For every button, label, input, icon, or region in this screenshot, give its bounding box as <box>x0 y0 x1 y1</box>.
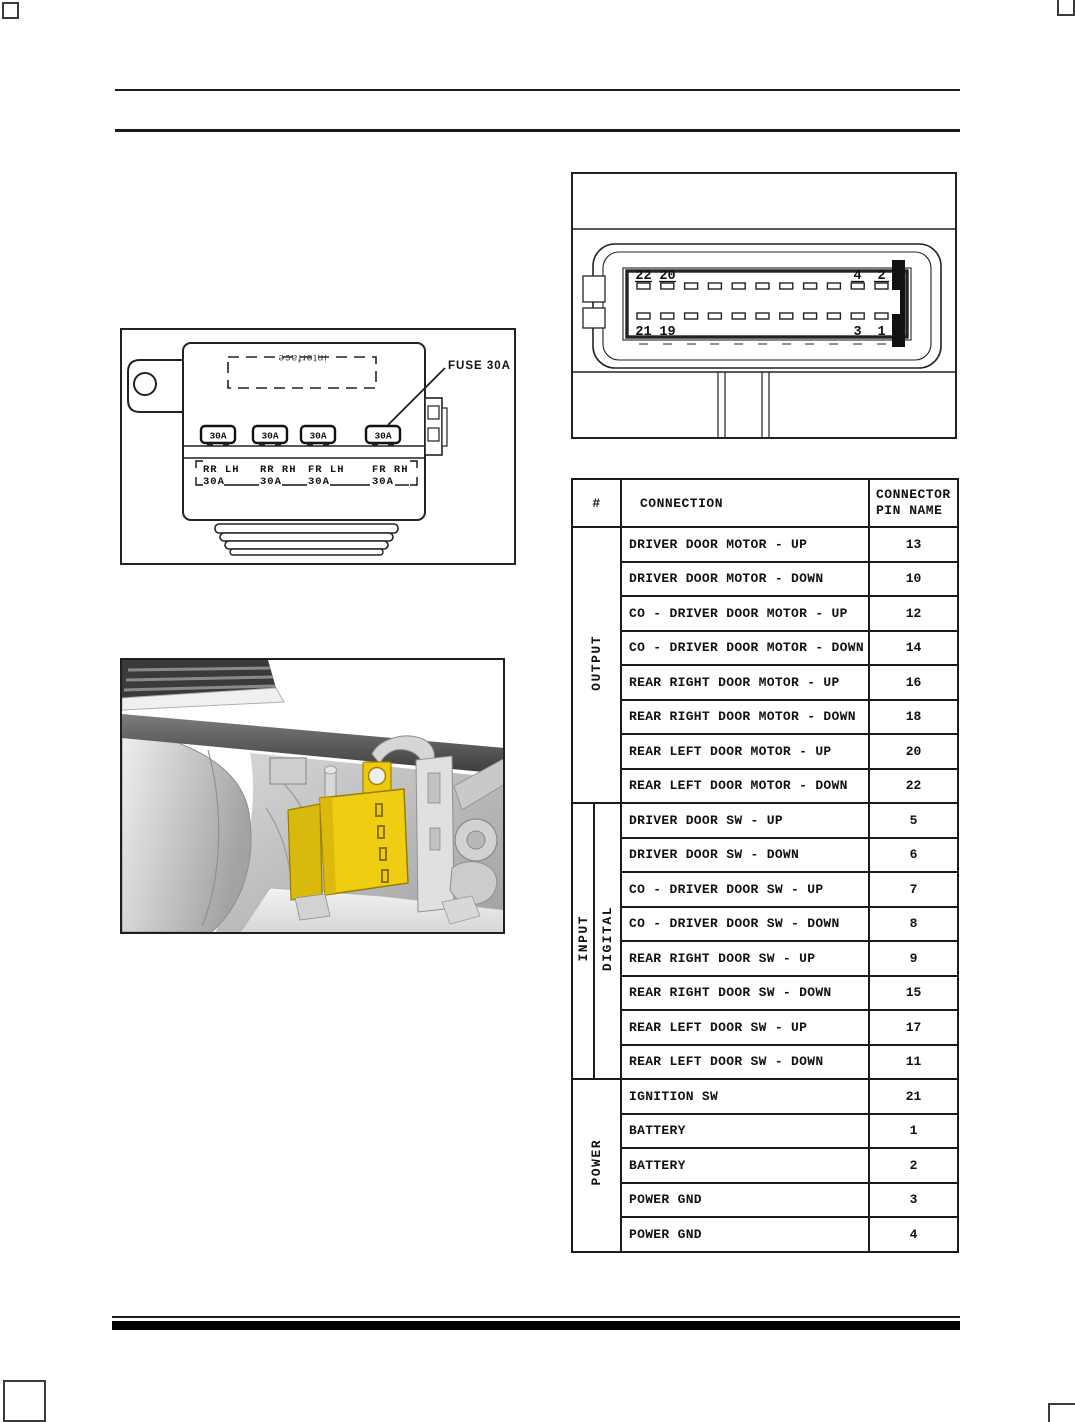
header-connection: CONNECTION <box>621 479 869 527</box>
group-label-input: INPUT <box>577 915 590 962</box>
header-rule-bottom <box>115 129 960 132</box>
registration-mark-bottom-left <box>3 1380 46 1422</box>
header-connector-pin-name: CONNECTOR PIN NAME <box>869 479 958 527</box>
footer-rule-thick <box>112 1321 960 1330</box>
connection-cell: BATTERY <box>621 1148 869 1183</box>
connection-cell: CO - DRIVER DOOR SW - UP <box>621 872 869 907</box>
connector-pinout-figure: 22 20 4 2 21 19 3 1 <box>571 172 957 439</box>
group-label-power: POWER <box>590 1139 603 1186</box>
connection-cell: POWER GND <box>621 1183 869 1218</box>
table-row: OUTPUT DRIVER DOOR MOTOR - UP 13 <box>572 527 958 562</box>
connector-pin-table: # CONNECTION CONNECTOR PIN NAME OUTPUT D… <box>571 478 957 1253</box>
fuse-4: 30A <box>366 426 400 446</box>
table-row: REAR RIGHT DOOR MOTOR - DOWN 18 <box>572 700 958 735</box>
table-row: REAR LEFT DOOR SW - UP 17 <box>572 1010 958 1045</box>
circuit-3-amp: 30A <box>308 476 330 488</box>
fuse-module-figure: interface 30A 30A 30A 30A <box>120 328 516 565</box>
circuit-4-name: FR RH <box>372 464 409 476</box>
pin-number-21: 21 <box>635 325 651 340</box>
pin-number-19: 19 <box>659 325 675 340</box>
table-row: CO - DRIVER DOOR MOTOR - DOWN 14 <box>572 631 958 666</box>
group-label-digital: DIGITAL <box>601 906 614 971</box>
air-vent <box>122 660 284 710</box>
bottom-connector-stack <box>215 524 398 555</box>
table-row: INPUT DIGITAL DRIVER DOOR SW - UP 5 <box>572 803 958 838</box>
header-rule-top <box>115 89 960 91</box>
table-row: CO - DRIVER DOOR SW - DOWN 8 <box>572 907 958 942</box>
table-row: DRIVER DOOR MOTOR - DOWN 10 <box>572 562 958 597</box>
table-row: DRIVER DOOR SW - DOWN 6 <box>572 838 958 873</box>
connection-cell: DRIVER DOOR MOTOR - UP <box>621 527 869 562</box>
pin-cell: 1 <box>869 1114 958 1149</box>
fuse-3: 30A <box>301 426 335 446</box>
group-label-output: OUTPUT <box>590 635 603 691</box>
table-row: REAR LEFT DOOR SW - DOWN 11 <box>572 1045 958 1080</box>
table-row: REAR LEFT DOOR MOTOR - DOWN 22 <box>572 769 958 804</box>
header-number: # <box>572 479 621 527</box>
table-row: REAR LEFT DOOR MOTOR - UP 20 <box>572 734 958 769</box>
registration-mark-bottom-right <box>1048 1403 1075 1422</box>
group-cell-power: POWER <box>572 1079 621 1252</box>
circuit-4-amp: 30A <box>372 476 394 488</box>
lower-bracket <box>295 894 330 920</box>
connection-cell: REAR RIGHT DOOR MOTOR - UP <box>621 665 869 700</box>
connection-cell: REAR RIGHT DOOR MOTOR - DOWN <box>621 700 869 735</box>
vertical-bracket <box>416 756 454 912</box>
fuse-1: 30A <box>201 426 235 446</box>
pin-cell: 12 <box>869 596 958 631</box>
pin-cell: 22 <box>869 769 958 804</box>
circuit-2-name: RR RH <box>260 464 297 476</box>
table-header-row: # CONNECTION CONNECTOR PIN NAME <box>572 479 958 527</box>
connection-cell: IGNITION SW <box>621 1079 869 1114</box>
circuit-3-name: FR LH <box>308 464 345 476</box>
connection-cell: REAR LEFT DOOR MOTOR - DOWN <box>621 769 869 804</box>
pin-cell: 13 <box>869 527 958 562</box>
pin-cell: 14 <box>869 631 958 666</box>
fuse-2: 30A <box>253 426 287 446</box>
connector-key-bar <box>892 260 905 347</box>
pin-cell: 18 <box>869 700 958 735</box>
pin-cell: 21 <box>869 1079 958 1114</box>
circuit-1-amp: 30A <box>203 476 225 488</box>
pin-cell: 20 <box>869 734 958 769</box>
svg-text:30A: 30A <box>261 431 278 442</box>
table-row: REAR RIGHT DOOR SW - DOWN 15 <box>572 976 958 1011</box>
connection-cell: POWER GND <box>621 1217 869 1252</box>
footer-rule-thin <box>112 1316 960 1318</box>
pin-cell: 16 <box>869 665 958 700</box>
registration-mark-top-right <box>1057 0 1075 16</box>
connection-cell: REAR RIGHT DOOR SW - UP <box>621 941 869 976</box>
table-row: BATTERY 1 <box>572 1114 958 1149</box>
pin-cell: 11 <box>869 1045 958 1080</box>
pin-number-1: 1 <box>877 325 885 340</box>
connection-cell: REAR LEFT DOOR SW - UP <box>621 1010 869 1045</box>
connection-cell: REAR RIGHT DOOR SW - DOWN <box>621 976 869 1011</box>
pin-cell: 10 <box>869 562 958 597</box>
registration-mark-top-left <box>2 2 19 19</box>
connection-cell: DRIVER DOOR SW - UP <box>621 803 869 838</box>
connection-cell: CO - DRIVER DOOR SW - DOWN <box>621 907 869 942</box>
pin-cell: 15 <box>869 976 958 1011</box>
connection-cell: DRIVER DOOR MOTOR - DOWN <box>621 562 869 597</box>
table-row: CO - DRIVER DOOR SW - UP 7 <box>572 872 958 907</box>
circuit-1-name: RR LH <box>203 464 240 476</box>
group-cell-output: OUTPUT <box>572 527 621 803</box>
connection-cell: REAR LEFT DOOR SW - DOWN <box>621 1045 869 1080</box>
pin-cell: 7 <box>869 872 958 907</box>
table-row: POWER GND 3 <box>572 1183 958 1218</box>
table-row: BATTERY 2 <box>572 1148 958 1183</box>
group-cell-input: INPUT <box>572 803 594 1079</box>
module-location-figure <box>120 658 505 934</box>
pin-cell: 6 <box>869 838 958 873</box>
pin-cell: 17 <box>869 1010 958 1045</box>
mounting-stud <box>325 766 337 798</box>
circuit-2-amp: 30A <box>260 476 282 488</box>
connection-cell: BATTERY <box>621 1114 869 1149</box>
table-row: REAR RIGHT DOOR MOTOR - UP 16 <box>572 665 958 700</box>
connection-cell: CO - DRIVER DOOR MOTOR - UP <box>621 596 869 631</box>
pin-cell: 5 <box>869 803 958 838</box>
table-row: CO - DRIVER DOOR MOTOR - UP 12 <box>572 596 958 631</box>
svg-text:30A: 30A <box>209 431 226 442</box>
table-row: REAR RIGHT DOOR SW - UP 9 <box>572 941 958 976</box>
manual-page: 22 20 4 2 21 19 3 1 interface <box>0 0 1075 1422</box>
fuse-pointer-label: FUSE 30A <box>448 360 511 372</box>
pin-cell: 9 <box>869 941 958 976</box>
pin-number-3: 3 <box>853 325 861 340</box>
pin-cell: 2 <box>869 1148 958 1183</box>
group-cell-digital: DIGITAL <box>594 803 621 1079</box>
mirrored-interface-text: interface <box>277 352 326 364</box>
pin-cell: 4 <box>869 1217 958 1252</box>
connection-cell: DRIVER DOOR SW - DOWN <box>621 838 869 873</box>
svg-text:30A: 30A <box>309 431 326 442</box>
connection-cell: REAR LEFT DOOR MOTOR - UP <box>621 734 869 769</box>
pin-cell: 8 <box>869 907 958 942</box>
connection-cell: CO - DRIVER DOOR MOTOR - DOWN <box>621 631 869 666</box>
pin-cell: 3 <box>869 1183 958 1218</box>
table-row: POWER GND 4 <box>572 1217 958 1252</box>
svg-text:30A: 30A <box>374 431 391 442</box>
table-row: POWER IGNITION SW 21 <box>572 1079 958 1114</box>
